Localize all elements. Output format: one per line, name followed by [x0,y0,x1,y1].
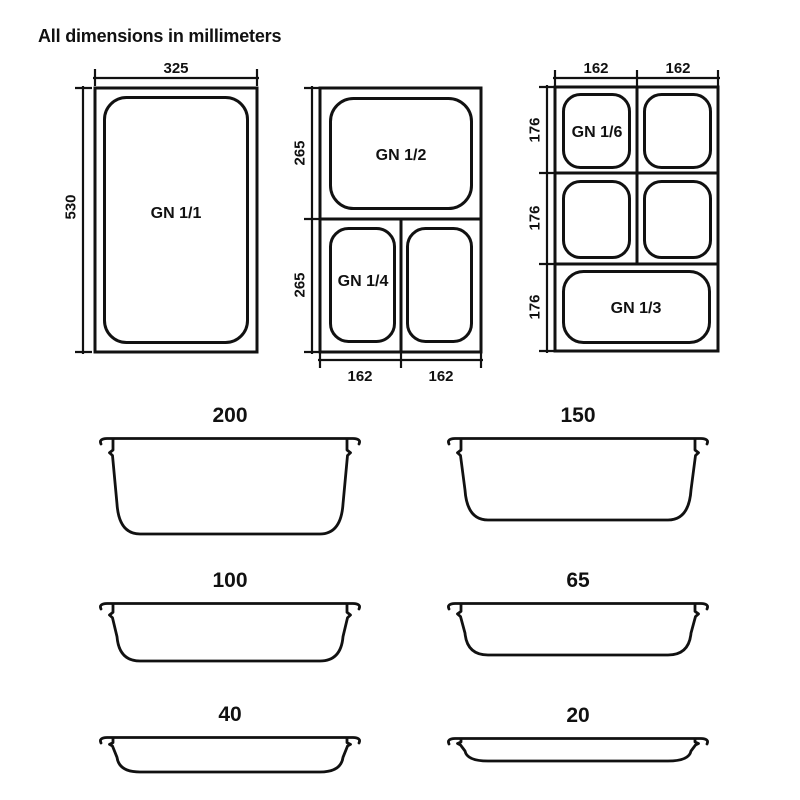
pan-profile-depth-40: 40 [90,699,370,780]
pan-size-label: GN 1/2 [376,147,427,164]
depth-label: 200 [90,400,370,432]
dim-label: 162 [583,60,608,77]
pan-profile-depth-150: 150 [438,400,718,528]
top-view-gn-1-1: 325 530 GN 1/1 [55,58,270,373]
dim-height-176-triple: 176 176 176 [527,85,557,353]
dim-width-162-pair: 162 162 [553,60,720,86]
pan-size-label: GN 1/1 [151,205,202,222]
pan-cross-section [90,597,370,669]
pan-rim-outline [448,439,707,445]
pan-cross-section [438,432,718,528]
pan-rim-outline [100,439,359,445]
dim-label: 176 [527,294,544,319]
dim-label: 265 [292,140,309,165]
dim-label: 176 [527,117,544,142]
pan-unlabeled [564,182,630,258]
pan-body-outline [458,604,699,655]
dim-label: 530 [63,194,80,219]
pan-cross-section [90,731,370,780]
pan-size-label: GN 1/3 [611,300,662,317]
pan-size-label: GN 1/6 [572,124,623,141]
dim-height-530: 530 [63,86,93,354]
pan-body-outline [110,604,351,661]
depth-label: 40 [90,699,370,731]
pan-profile-depth-20: 20 [438,700,718,769]
top-view-gn-1-2-1-4: 265 265 162 162 GN 1/2 GN 1/4 [290,58,505,388]
pan-cross-section [90,432,370,542]
pan-body-outline [110,439,351,534]
pan-body-outline [458,739,699,761]
pan-cross-section [438,732,718,769]
pan-profile-depth-65: 65 [438,565,718,663]
pan-profile-depth-200: 200 [90,400,370,542]
dim-width-162-pair: 162 162 [318,352,483,385]
dim-label: 162 [428,368,453,385]
pan-unlabeled [645,95,711,168]
dim-label: 265 [292,272,309,297]
depth-label: 65 [438,565,718,597]
depth-label: 150 [438,400,718,432]
pan-cross-section [438,597,718,663]
pan-body-outline [110,738,351,772]
dim-label: 162 [665,60,690,77]
pan-body-outline [458,439,699,520]
dim-label: 162 [347,368,372,385]
pan-rim-outline [448,739,707,745]
pan-unlabeled [408,229,472,342]
pan-rim-outline [448,604,707,610]
dim-height-265-pair: 265 265 [292,86,322,354]
pan-size-label: GN 1/4 [338,273,389,290]
page-title: All dimensions in millimeters [38,26,281,47]
pan-rim-outline [100,738,359,744]
top-view-gn-1-6-1-3: 162 162 176 176 176 GN 1/6 GN 1/3 [520,55,740,367]
dim-width-325: 325 [93,60,259,86]
depth-label: 100 [90,565,370,597]
depth-label: 20 [438,700,718,732]
dim-label: 176 [527,205,544,230]
pan-profile-depth-100: 100 [90,565,370,669]
dim-label: 325 [163,60,188,77]
pan-rim-outline [100,604,359,610]
pan-unlabeled [645,182,711,258]
